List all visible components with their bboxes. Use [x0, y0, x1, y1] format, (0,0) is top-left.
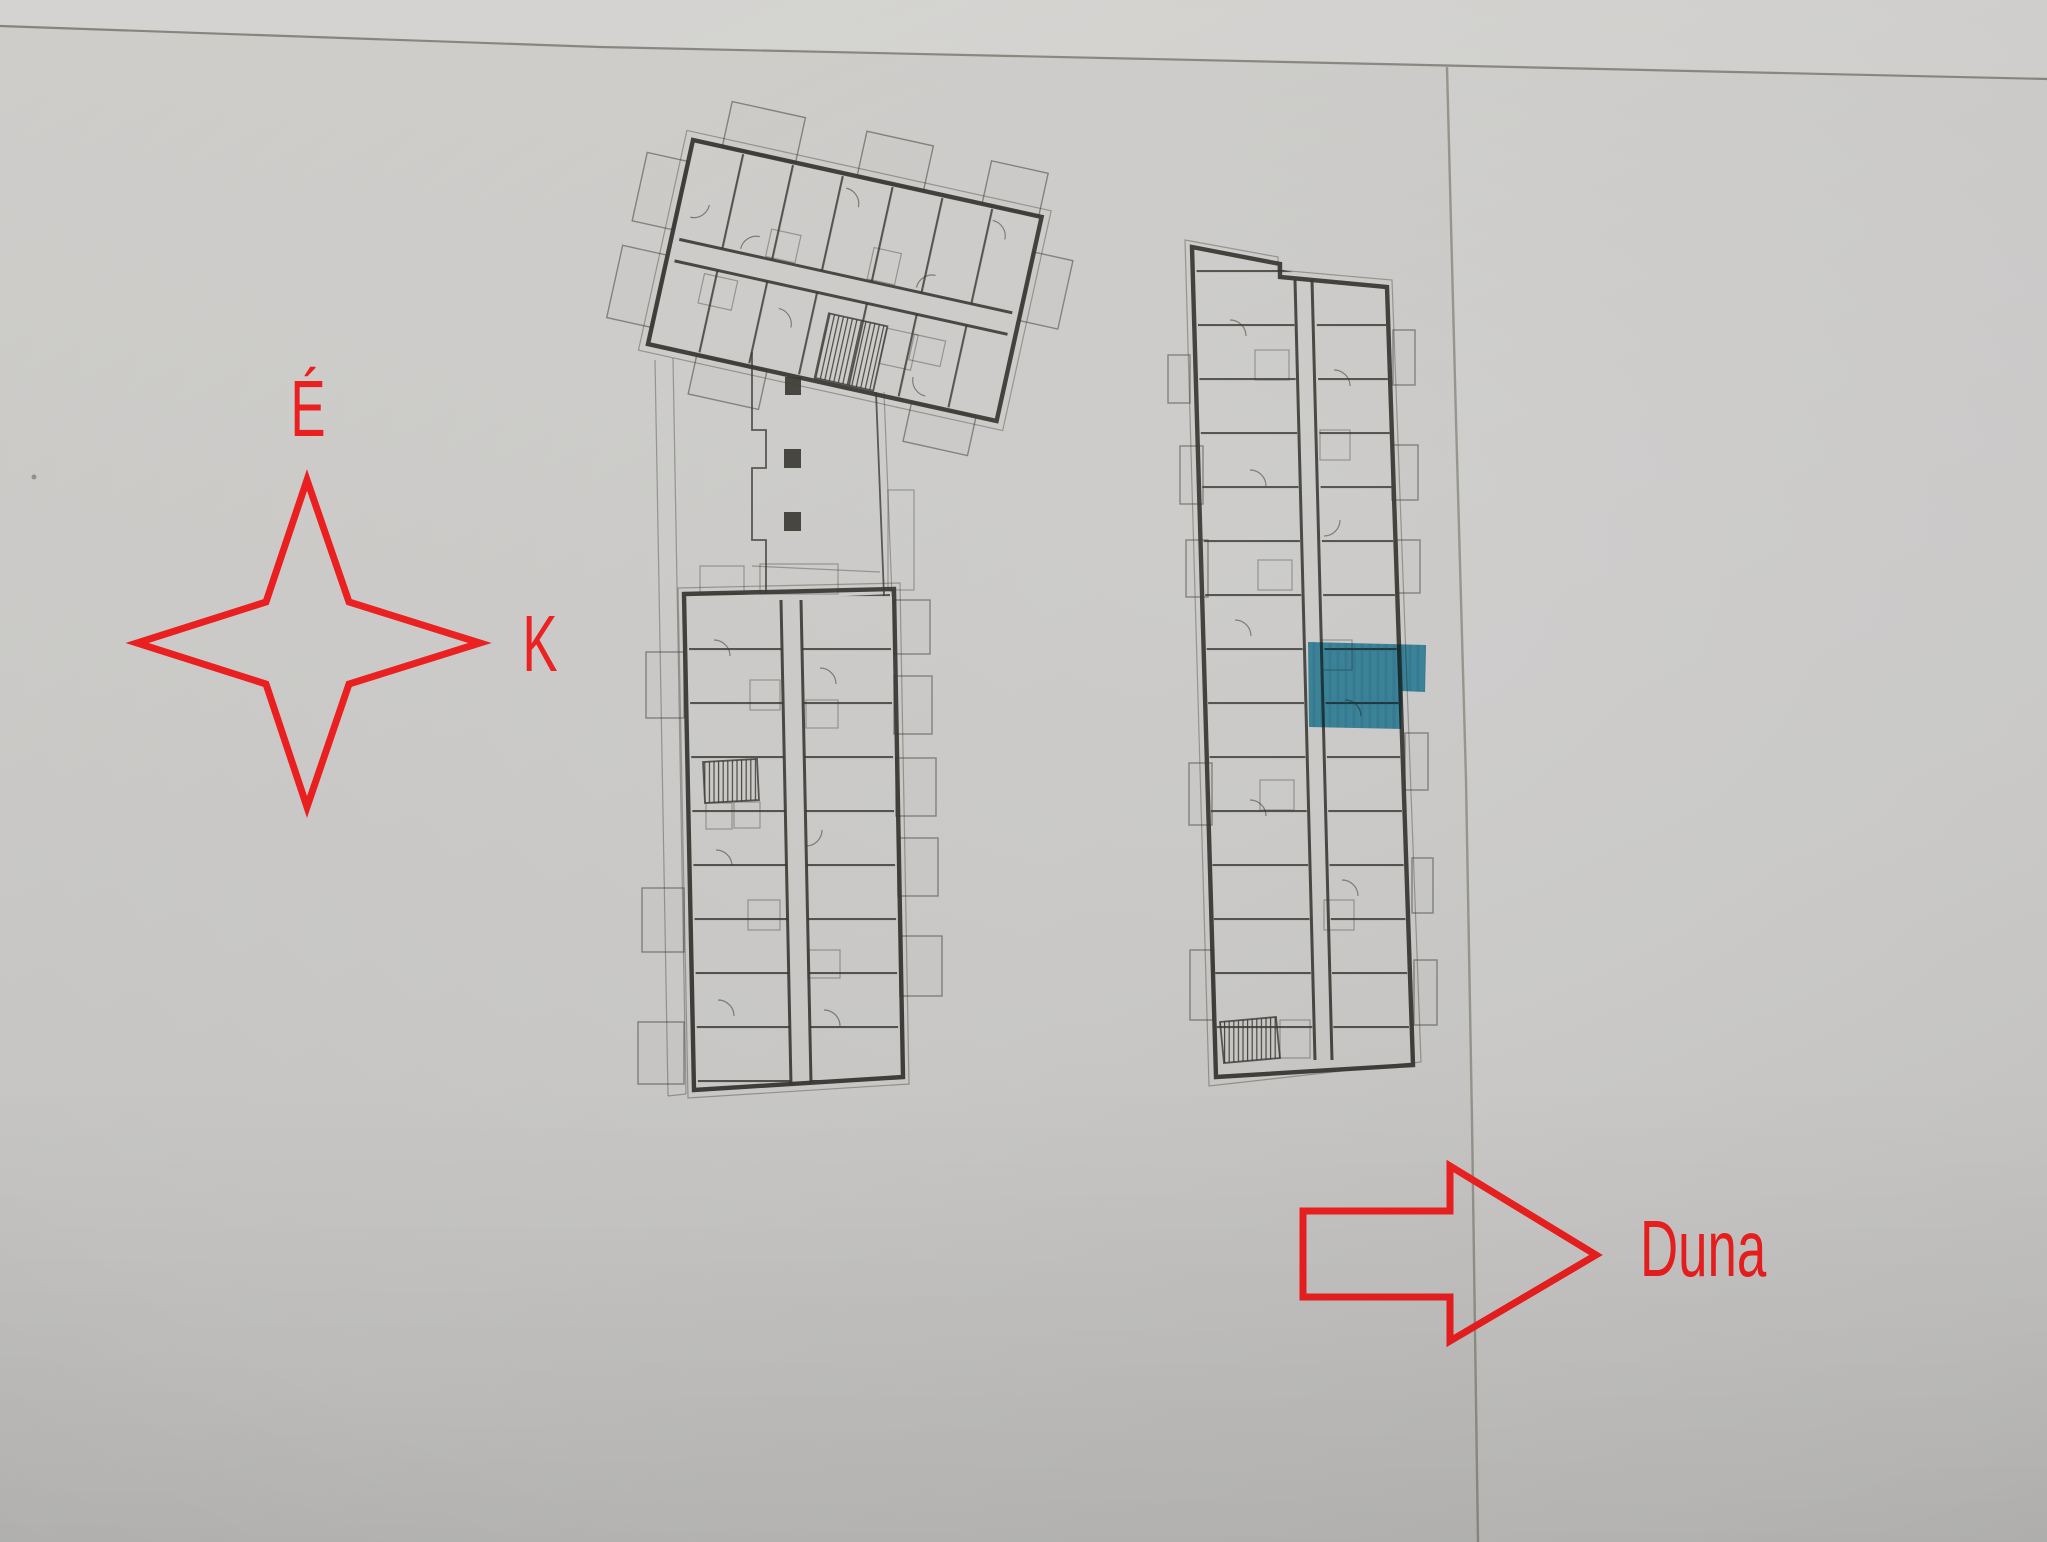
- floor-plan-drawing: [0, 0, 2047, 1542]
- site-plan-photo: É K Duna: [0, 0, 2047, 1542]
- paper-upper-strip: [0, 0, 2047, 79]
- paper-speck: [32, 475, 37, 480]
- compass-star-icon: [137, 480, 480, 807]
- building-north-floorplan: [594, 85, 1090, 469]
- paper-right-strip: [1447, 67, 2047, 1542]
- compass-north-label: É: [270, 369, 347, 449]
- river-label: Duna: [1640, 1209, 1766, 1289]
- compass-east-label: K: [512, 604, 567, 684]
- compass-rose: [137, 480, 480, 807]
- building-west-floorplan: [638, 564, 942, 1098]
